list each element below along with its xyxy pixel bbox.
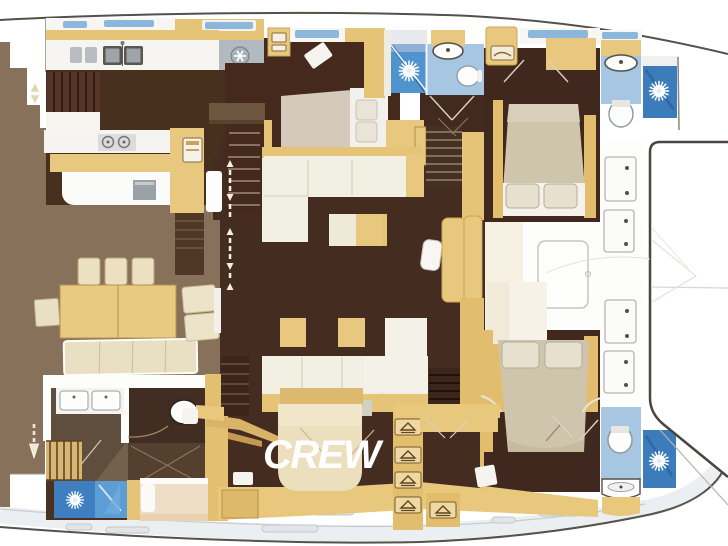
svg-text:CREW: CREW [263,433,384,477]
